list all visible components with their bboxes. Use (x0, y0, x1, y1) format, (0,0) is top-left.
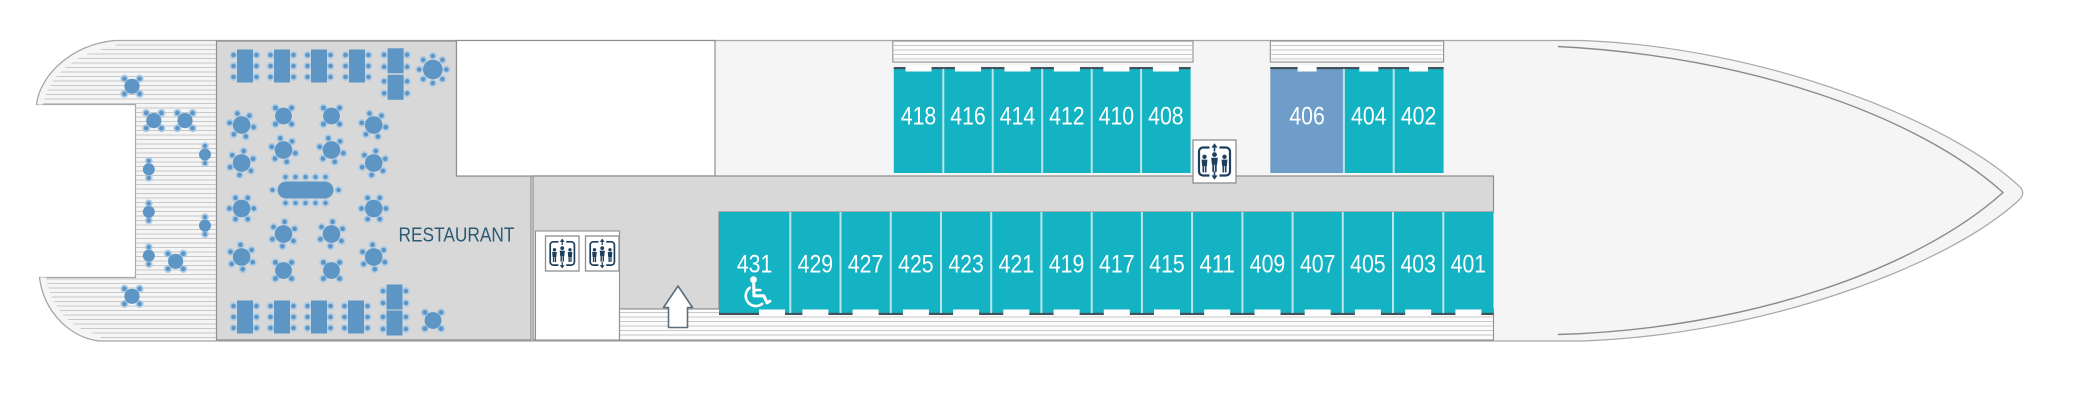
svg-text:423: 423 (948, 251, 984, 279)
svg-text:429: 429 (798, 251, 834, 279)
svg-text:404: 404 (1351, 103, 1387, 131)
svg-text:412: 412 (1049, 103, 1085, 131)
svg-text:414: 414 (1000, 103, 1036, 131)
svg-text:418: 418 (901, 103, 937, 131)
svg-text:416: 416 (950, 103, 986, 131)
svg-text:415: 415 (1149, 251, 1185, 279)
svg-text:403: 403 (1400, 251, 1436, 279)
svg-text:401: 401 (1451, 251, 1487, 279)
svg-text:406: 406 (1289, 103, 1325, 131)
svg-text:431: 431 (737, 251, 773, 279)
svg-text:419: 419 (1049, 251, 1085, 279)
svg-text:405: 405 (1350, 251, 1386, 279)
svg-text:402: 402 (1401, 103, 1437, 131)
svg-text:425: 425 (898, 251, 934, 279)
svg-text:421: 421 (999, 251, 1035, 279)
svg-text:409: 409 (1250, 251, 1286, 279)
svg-text:417: 417 (1099, 251, 1135, 279)
svg-text:RESTAURANT: RESTAURANT (399, 224, 515, 247)
svg-text:408: 408 (1148, 103, 1184, 131)
svg-text:411: 411 (1199, 251, 1235, 279)
svg-text:427: 427 (848, 251, 884, 279)
svg-text:407: 407 (1300, 251, 1336, 279)
svg-text:410: 410 (1099, 103, 1135, 131)
